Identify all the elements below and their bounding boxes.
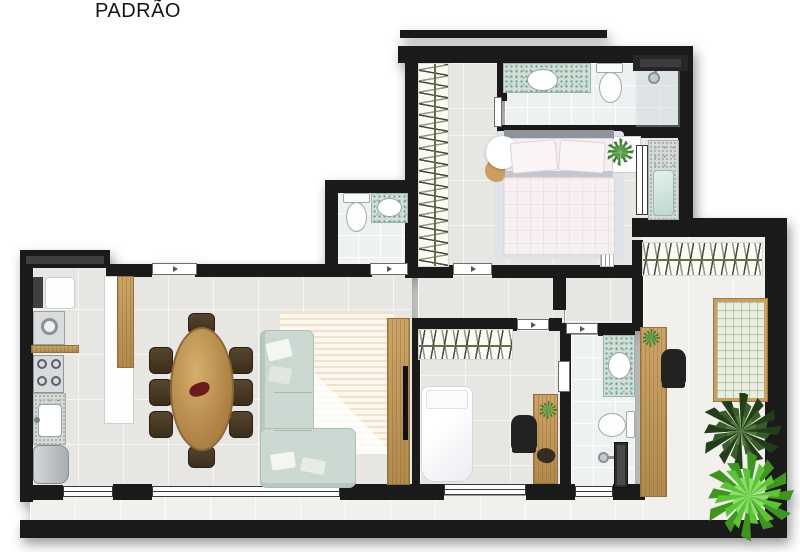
fridge: [33, 445, 69, 484]
suite-bathroom-door: [494, 97, 502, 127]
wall: [678, 52, 693, 232]
bathroom2-toilet-bowl: [598, 413, 626, 437]
burner-icon: [51, 376, 61, 386]
wall: [20, 250, 33, 502]
balcony-counter-plant-icon: [641, 328, 661, 348]
kitchen-island-wood: [117, 276, 134, 368]
dining-chair: [149, 347, 173, 374]
bathroom2-door: [566, 323, 598, 334]
wall: [325, 180, 338, 267]
wall: [340, 484, 444, 500]
side-table-plant-icon: [605, 137, 635, 167]
burner-icon: [51, 359, 61, 369]
shaft-duct: [26, 256, 104, 264]
kitchen-duct: [33, 277, 43, 308]
entry-door: [152, 263, 197, 275]
wall: [195, 264, 327, 277]
washer-door-icon: [41, 318, 58, 335]
shower-screen: [614, 442, 628, 488]
wall: [325, 264, 372, 277]
desk-plant-icon: [538, 400, 558, 420]
balcony-office-chair: [661, 349, 686, 386]
tv: [403, 366, 408, 440]
suite-toilet-bowl: [599, 72, 622, 103]
wall: [113, 484, 152, 500]
sliding-window: [63, 486, 113, 497]
sliding-window: [444, 484, 526, 495]
laundry-tank: [45, 277, 75, 309]
wall: [325, 180, 410, 193]
hall-floor: [418, 275, 564, 324]
lavabo-sink: [377, 198, 402, 217]
wall: [632, 218, 787, 237]
sofa-pillow: [267, 364, 294, 386]
shower-head-icon: [598, 452, 609, 463]
bathroom2-sink: [608, 352, 631, 379]
bathroom2-toilet-tank: [626, 411, 635, 438]
dark-niche-inner: [640, 59, 681, 67]
wall: [560, 323, 571, 490]
tub-glass: [653, 170, 674, 216]
wall: [553, 275, 566, 310]
duvet: [503, 177, 615, 255]
sofa-pillow: [269, 450, 297, 471]
bath-nook-floor: [565, 276, 635, 327]
wall: [400, 30, 607, 38]
single-bed-pillow: [426, 390, 468, 409]
bed-pillow: [558, 139, 606, 173]
burner-icon: [37, 359, 47, 369]
shower-head-icon: [648, 72, 660, 84]
dining-chair: [149, 411, 173, 438]
office-door: [517, 319, 549, 330]
lavabo-door: [370, 263, 408, 275]
sliding-door-bedroom-tub: [636, 145, 648, 215]
futon-quilt: [717, 302, 764, 398]
wall: [20, 520, 787, 538]
office-chair: [511, 415, 537, 451]
balcony-slatted-bench: [642, 242, 763, 276]
lavabo-toilet-bowl: [346, 202, 367, 232]
kitchen-shelf: [31, 345, 79, 353]
wall: [526, 484, 575, 500]
fern-icon: [700, 448, 798, 544]
suite-door: [453, 263, 492, 275]
dining-chair: [229, 411, 253, 438]
suite-sink: [527, 69, 558, 91]
sofa-cushion-line: [274, 430, 312, 431]
wall: [20, 485, 63, 500]
floor-plan: [0, 0, 800, 552]
floor-plan-image: PADRÃO: [0, 0, 800, 552]
faucet-icon: [34, 417, 40, 423]
office-wardrobe-rail: [418, 329, 513, 360]
suite-closet-rail: [418, 63, 449, 267]
sofa-cushion-line: [274, 392, 312, 393]
sliding-window: [575, 486, 613, 497]
burner-icon: [37, 376, 47, 386]
kitchen-sink: [38, 404, 62, 437]
bed-pillow: [510, 139, 559, 174]
bathroom2-side-door: [558, 361, 570, 392]
